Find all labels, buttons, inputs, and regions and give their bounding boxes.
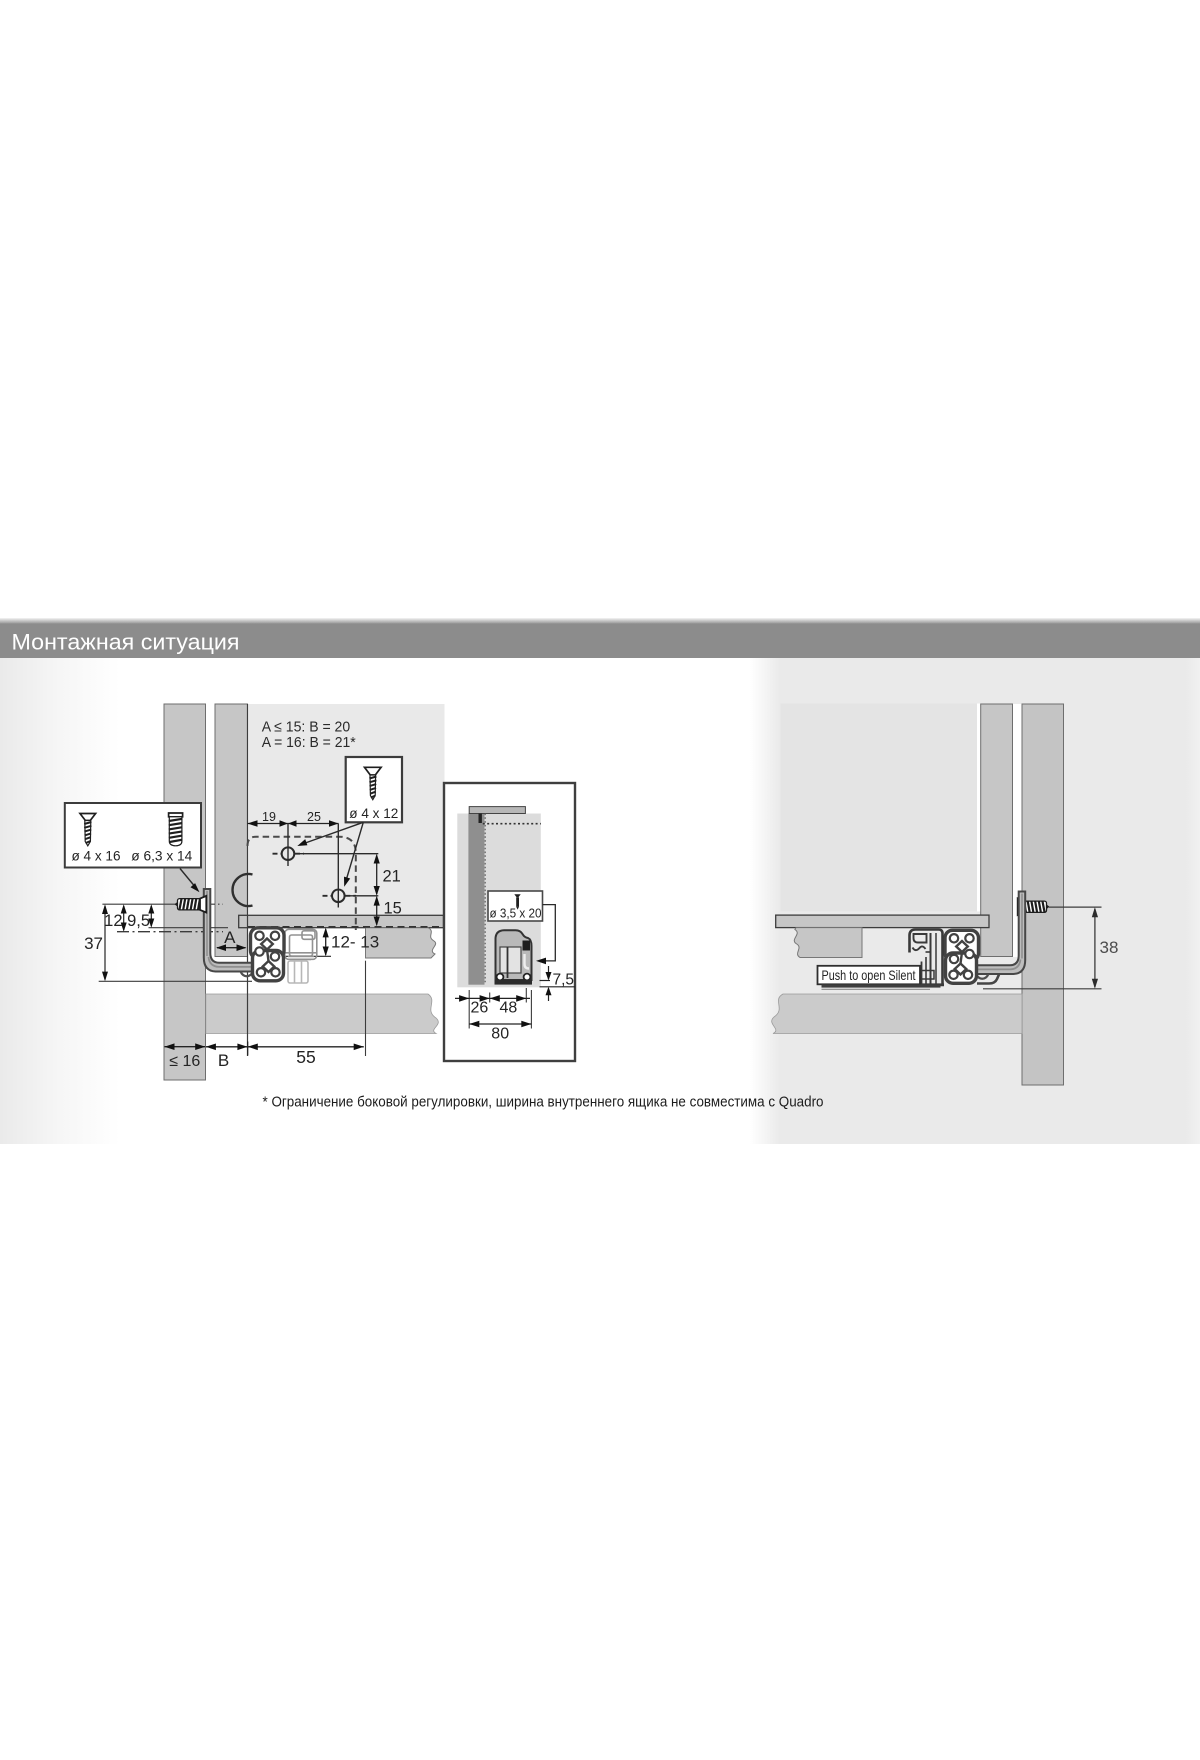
svg-text:80: 80 (491, 1025, 509, 1042)
svg-text:Push to open Silent: Push to open Silent (822, 967, 916, 983)
svg-text:38: 38 (1100, 938, 1119, 957)
svg-text:A = 16: B = 21*: A = 16: B = 21* (262, 734, 356, 751)
svg-text:12: 12 (104, 912, 122, 930)
svg-text:Монтажная ситуация: Монтажная ситуация (12, 630, 240, 655)
svg-text:19: 19 (262, 810, 276, 824)
svg-text:7,5: 7,5 (553, 972, 575, 989)
svg-text:ø 3,5 x 20: ø 3,5 x 20 (490, 906, 542, 921)
svg-text:* Ограничение боковой регулиро: * Ограничение боковой регулировки, ширин… (263, 1094, 824, 1111)
svg-text:B: B (218, 1051, 229, 1070)
svg-text:ø 6,3 x 14: ø 6,3 x 14 (131, 849, 192, 864)
svg-text:≤ 16: ≤ 16 (169, 1053, 200, 1070)
svg-text:15: 15 (384, 900, 402, 918)
svg-text:A ≤ 15: B = 20: A ≤ 15: B = 20 (262, 718, 351, 735)
svg-text:37: 37 (84, 934, 103, 953)
svg-text:55: 55 (296, 1047, 315, 1067)
svg-text:9,5: 9,5 (127, 912, 150, 930)
svg-text:26: 26 (471, 999, 489, 1016)
svg-text:A: A (224, 928, 236, 947)
svg-text:ø 4 x 12: ø 4 x 12 (349, 806, 398, 821)
svg-text:25: 25 (307, 810, 321, 824)
svg-text:12- 13: 12- 13 (331, 932, 379, 951)
svg-text:21: 21 (383, 867, 401, 885)
svg-text:ø 4 x 16: ø 4 x 16 (72, 849, 121, 864)
svg-text:48: 48 (500, 999, 518, 1016)
